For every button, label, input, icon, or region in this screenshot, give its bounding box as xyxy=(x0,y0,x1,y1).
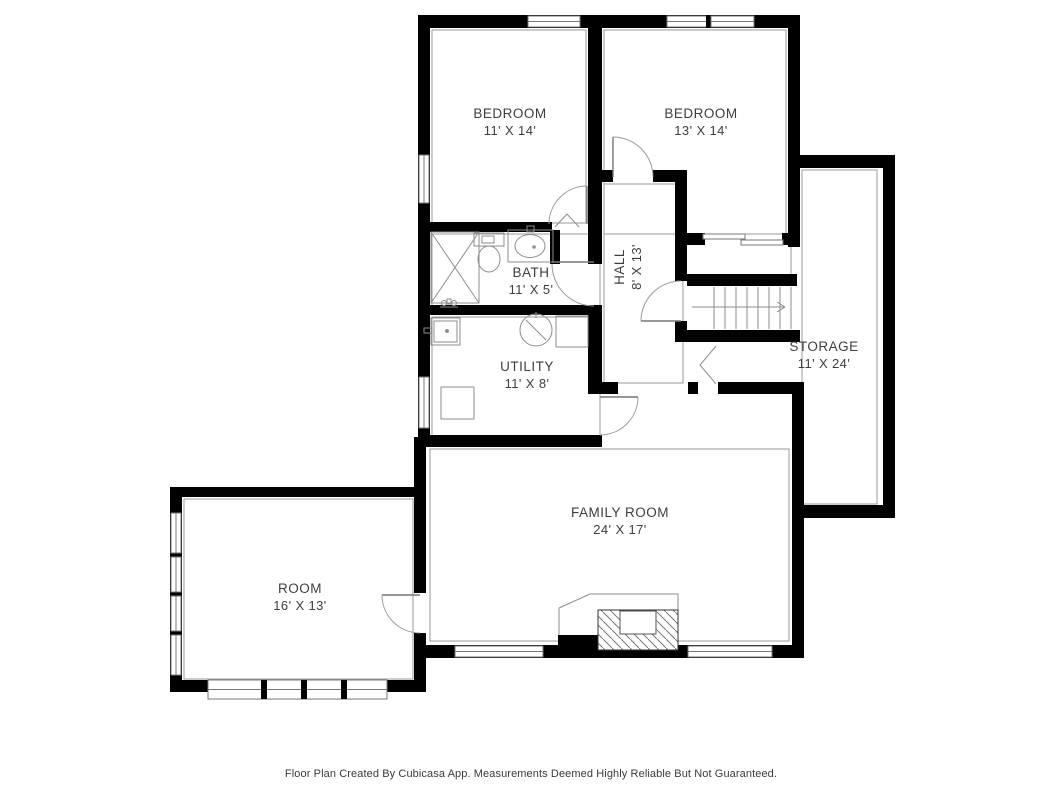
window xyxy=(528,16,580,27)
window xyxy=(419,377,429,428)
closet-bifold-door xyxy=(555,214,579,227)
room-label-room: ROOM 16' X 13' xyxy=(273,580,326,614)
room-name: ROOM xyxy=(273,580,326,597)
room-dimensions: 11' X 14' xyxy=(473,122,546,139)
room-label-storage: STORAGE 11' X 24' xyxy=(789,338,858,372)
room-dimensions: 11' X 24' xyxy=(789,355,858,372)
room-label-family-room: FAMILY ROOM 24' X 17' xyxy=(571,504,669,538)
stairs-door xyxy=(641,281,681,321)
window xyxy=(711,16,754,27)
room-name: BATH xyxy=(509,264,554,281)
bath-door xyxy=(552,262,594,306)
room-dimensions: 13' X 14' xyxy=(664,122,737,139)
footer-disclaimer: Floor Plan Created By Cubicasa App. Meas… xyxy=(285,768,777,780)
stairs-icon xyxy=(692,287,791,329)
window xyxy=(419,155,429,203)
room-name: STORAGE xyxy=(789,338,858,355)
window xyxy=(667,16,708,27)
room-label-bedroom2: BEDROOM 13' X 14' xyxy=(664,105,737,139)
room-name: UTILITY xyxy=(500,358,554,375)
floor-plan: BEDROOM 11' X 14' BEDROOM 13' X 14' BATH… xyxy=(0,0,1061,797)
room-label-utility: UTILITY 11' X 8' xyxy=(500,358,554,392)
shower-icon xyxy=(431,232,479,307)
bedroom1-door xyxy=(549,186,587,224)
room-label-bedroom1: BEDROOM 11' X 14' xyxy=(473,105,546,139)
room-name: BEDROOM xyxy=(473,105,546,122)
dryer-icon xyxy=(556,316,588,347)
fireplace-icon xyxy=(558,594,678,650)
room-name: BEDROOM xyxy=(664,105,737,122)
bedroom2-door xyxy=(613,137,653,177)
window xyxy=(455,646,543,657)
window xyxy=(171,513,181,553)
room-label-bath: BATH 11' X 5' xyxy=(509,264,554,298)
room-dimensions: 16' X 13' xyxy=(273,597,326,614)
bifold-door xyxy=(700,346,716,384)
room-dimensions: 11' X 5' xyxy=(509,281,554,298)
room-label-hall: HALL 8' X 13' xyxy=(611,244,645,290)
room-dimensions: 8' X 13' xyxy=(628,244,645,290)
window xyxy=(171,596,181,631)
washer-icon xyxy=(441,387,474,419)
window xyxy=(171,635,181,675)
window xyxy=(171,557,181,592)
stairs-direction-arrow xyxy=(692,302,785,312)
room-dimensions: 11' X 8' xyxy=(500,375,554,392)
window xyxy=(688,646,772,657)
window xyxy=(208,680,387,699)
room-name: FAMILY ROOM xyxy=(571,504,669,521)
room-dimensions: 24' X 17' xyxy=(571,521,669,538)
family-room-door xyxy=(600,397,638,435)
closet-sliding-door xyxy=(703,234,783,245)
room-name: HALL xyxy=(611,244,628,290)
room-door xyxy=(382,595,420,633)
